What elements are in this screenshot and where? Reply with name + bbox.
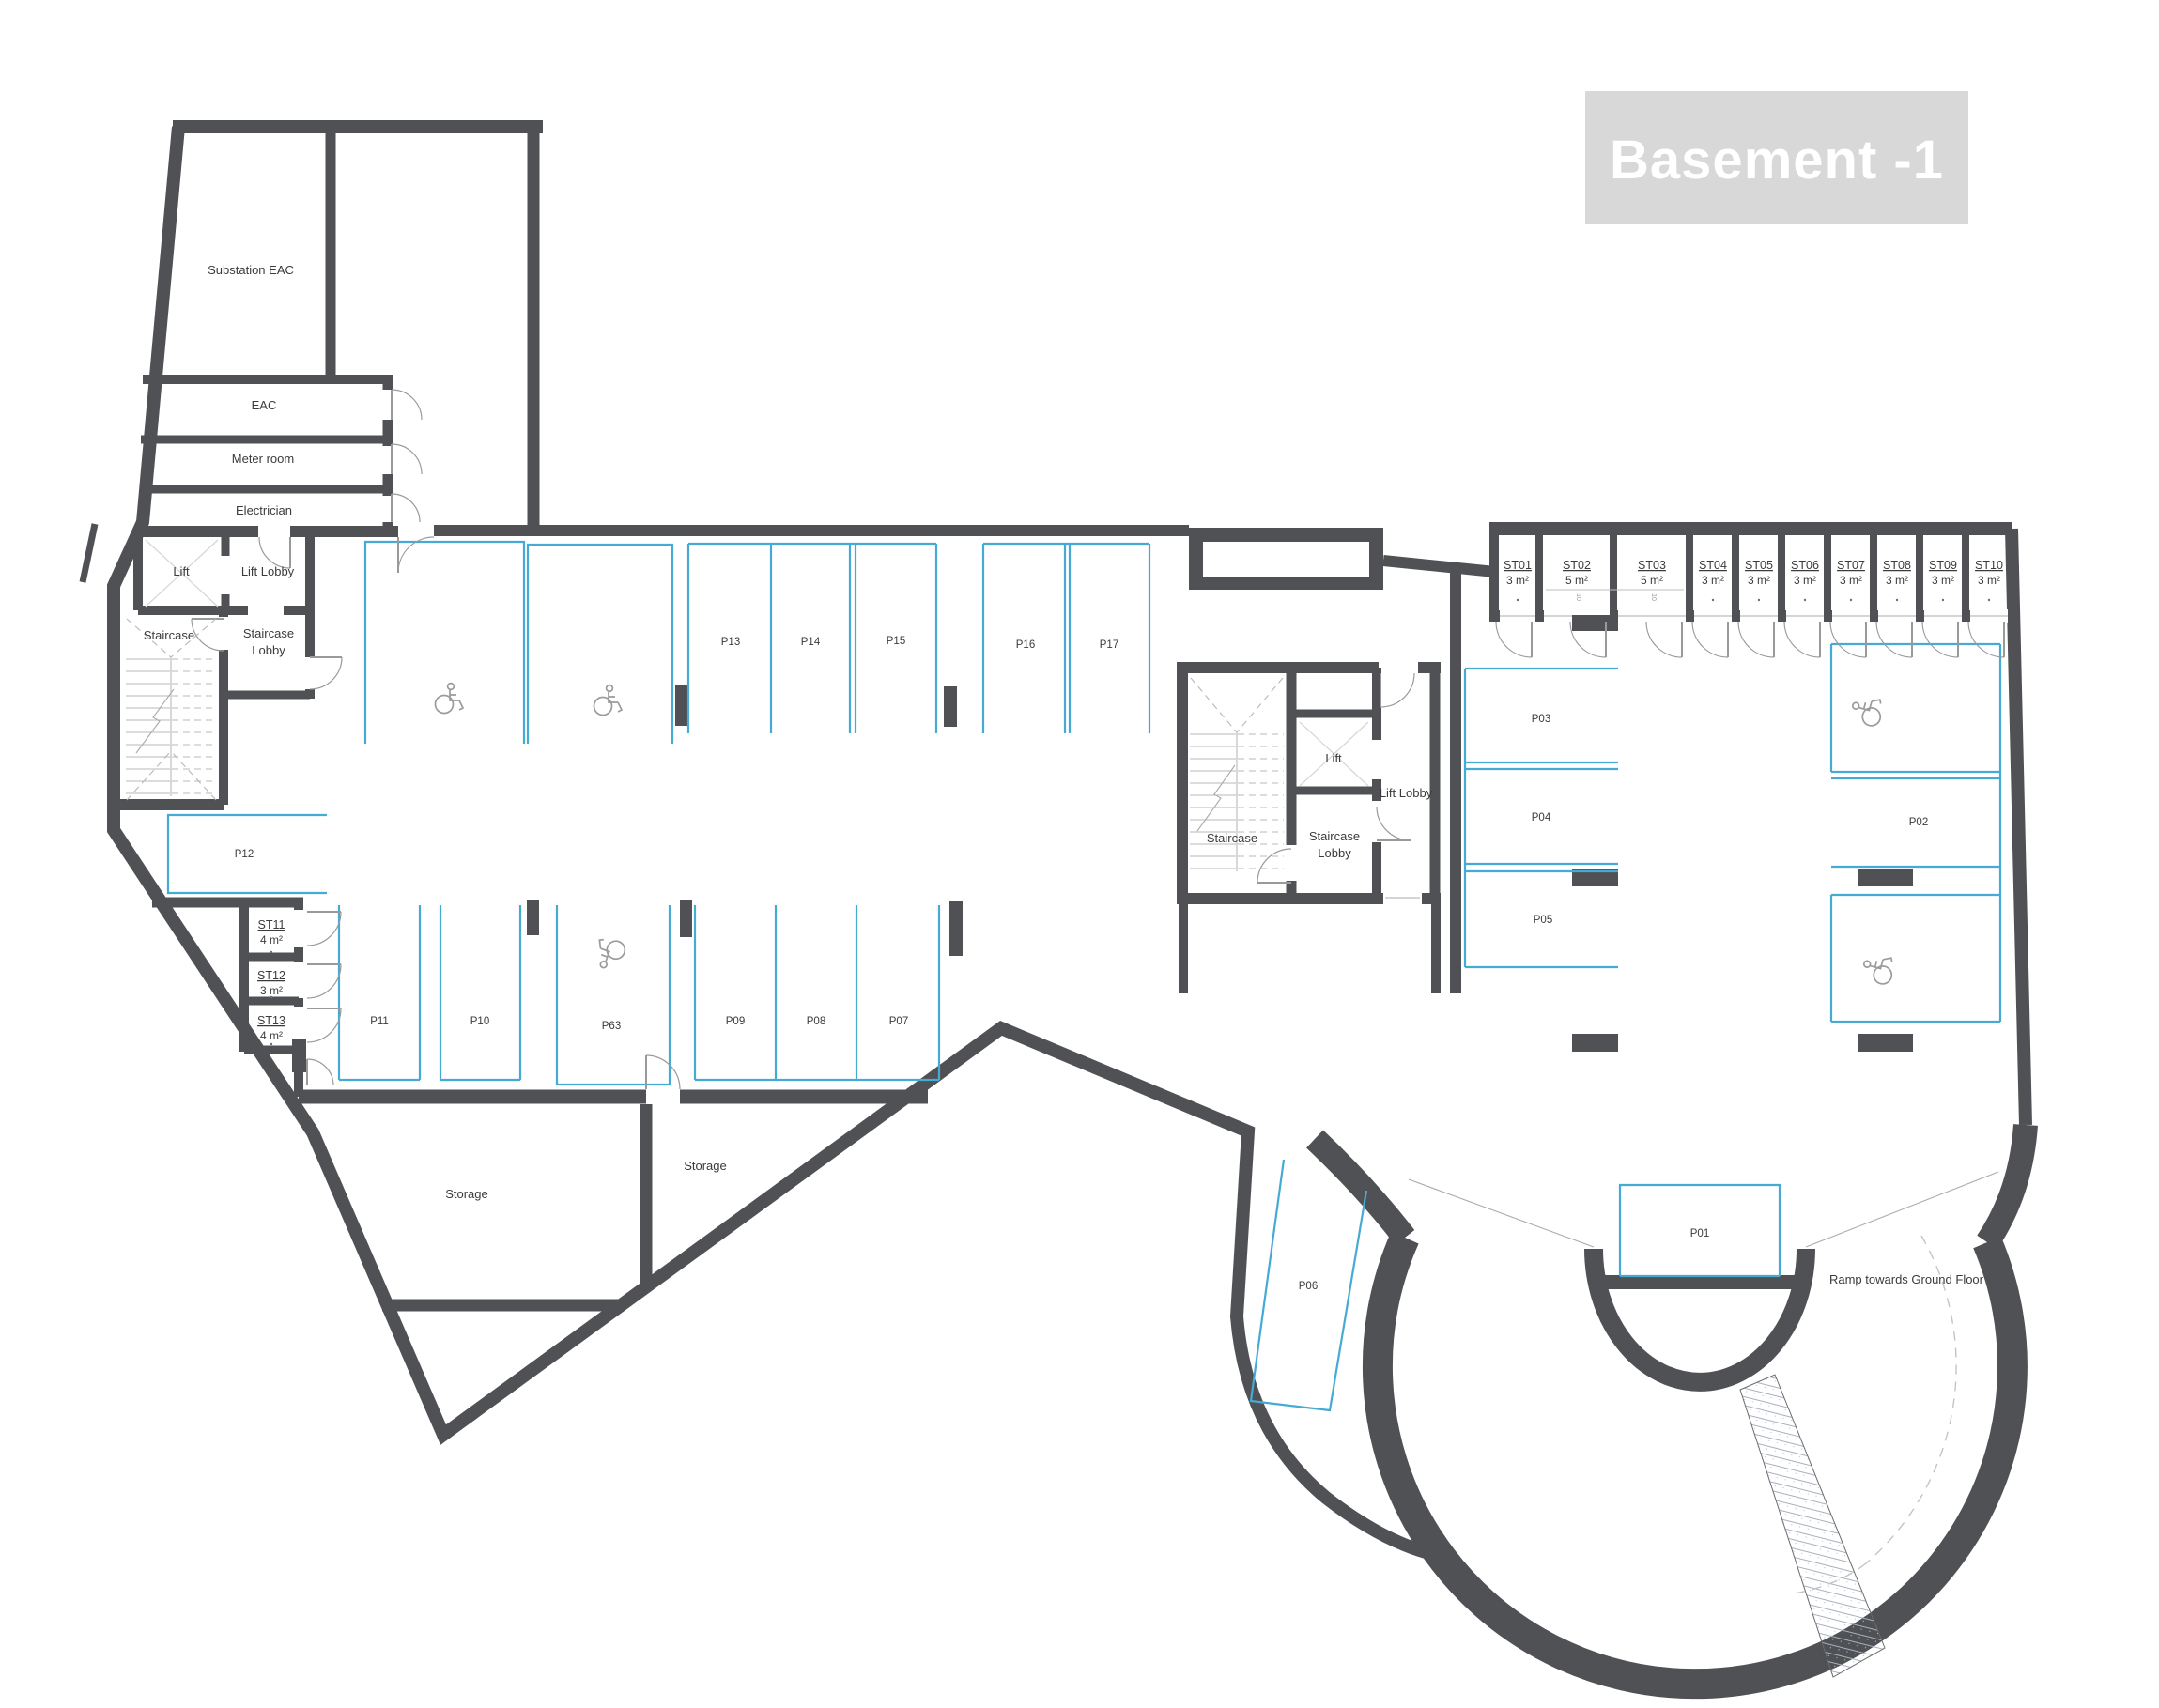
parking-label-p01: P01 bbox=[1690, 1228, 1709, 1239]
column bbox=[944, 686, 957, 727]
room-label-lift-lobby-left: Lift Lobby bbox=[241, 564, 295, 578]
labels-layer: Substation EAC EAC Meter room Electricia… bbox=[144, 263, 2003, 1292]
stair-direction-arrow bbox=[136, 689, 174, 753]
room-label-storage-left: Storage bbox=[445, 1187, 488, 1201]
top-wall-to-storage bbox=[1383, 561, 1495, 572]
storage-label-st09: ST09 bbox=[1929, 559, 1957, 572]
wheelchair-icon bbox=[436, 684, 464, 714]
storage-label-st03: ST03 bbox=[1638, 559, 1666, 572]
room-label-staircase-right: Staircase bbox=[1207, 831, 1257, 845]
room-label-lift-left: Lift bbox=[173, 564, 190, 578]
storage-area-st03: 5 m² bbox=[1641, 574, 1663, 587]
parking-label-p10: P10 bbox=[470, 1016, 489, 1027]
parking-label-p06: P06 bbox=[1299, 1281, 1318, 1292]
column bbox=[292, 1039, 306, 1072]
vent-shaft-opening bbox=[1203, 542, 1369, 577]
stair-direction-arrow bbox=[1197, 765, 1235, 831]
column bbox=[1572, 1034, 1618, 1052]
wall-stub-left bbox=[83, 524, 95, 582]
parking-label-p04: P04 bbox=[1532, 812, 1551, 823]
columns-layer bbox=[292, 615, 1913, 1072]
storage-label-st12: ST12 bbox=[257, 969, 285, 982]
storage-label-st07: ST07 bbox=[1837, 559, 1865, 572]
door-thresholds bbox=[1385, 616, 2008, 898]
title-block: Basement -1 bbox=[1585, 91, 1968, 224]
parking-label-p11: P11 bbox=[370, 1016, 389, 1027]
room-label-staircase-lobby-left-1: Staircase bbox=[243, 626, 294, 640]
column bbox=[949, 901, 963, 956]
column bbox=[1858, 869, 1913, 886]
storage-area-st11: 4 m² bbox=[260, 933, 283, 946]
storage-mark-st02: 10 bbox=[1575, 593, 1581, 601]
room-label-substation: Substation EAC bbox=[208, 263, 294, 277]
icons-layer bbox=[436, 684, 1897, 986]
storage-label-st11: ST11 bbox=[258, 918, 285, 931]
parking-label-p02: P02 bbox=[1909, 817, 1928, 828]
storage-area-st09: 3 m² bbox=[1932, 574, 1954, 587]
room-label-meter-room: Meter room bbox=[232, 452, 294, 466]
storage-area-st10: 3 m² bbox=[1978, 574, 2000, 587]
wheelchair-icon bbox=[1849, 693, 1885, 728]
main-top-wall bbox=[136, 531, 1189, 531]
storage-area-st08: 3 m² bbox=[1886, 574, 1908, 587]
ramp-left-prong-wall bbox=[1315, 1139, 1405, 1238]
storage-label-st10: ST10 bbox=[1975, 559, 2003, 572]
storage-area-st06: 3 m² bbox=[1794, 574, 1816, 587]
column bbox=[1858, 1034, 1913, 1052]
parking-label-p16: P16 bbox=[1016, 639, 1035, 651]
spots-bottom-row bbox=[339, 905, 939, 1085]
room-label-electrician: Electrician bbox=[236, 503, 292, 517]
parking-label-p63: P63 bbox=[602, 1021, 621, 1032]
parking-label-p14: P14 bbox=[801, 637, 821, 648]
room-label-staircase-lobby-left-2: Lobby bbox=[252, 643, 285, 657]
parking-label-p12: P12 bbox=[235, 849, 254, 860]
storage-area-st05: 3 m² bbox=[1748, 574, 1770, 587]
page-title: Basement -1 bbox=[1610, 130, 1944, 191]
storage-label-st01: ST01 bbox=[1504, 559, 1532, 572]
storage-area-st13: 4 m² bbox=[260, 1029, 283, 1042]
storage-label-st08: ST08 bbox=[1883, 559, 1911, 572]
ramp-horseshoe-bar bbox=[1595, 1275, 1805, 1289]
storage-label-st06: ST06 bbox=[1791, 559, 1819, 572]
parking-label-p03: P03 bbox=[1532, 714, 1550, 725]
walls-layer bbox=[83, 124, 2026, 1684]
floor-plan-canvas: Substation EAC EAC Meter room Electricia… bbox=[0, 0, 2159, 1708]
parking-label-p07: P07 bbox=[889, 1016, 908, 1027]
wheelchair-icon bbox=[591, 935, 627, 973]
ramp-hatched-strip bbox=[1740, 1375, 1885, 1677]
room-label-lift-right: Lift bbox=[1325, 751, 1342, 765]
room-label-lift-lobby-right: Lift Lobby bbox=[1380, 786, 1433, 800]
storage-label-st04: ST04 bbox=[1699, 559, 1727, 572]
parking-label-p08: P08 bbox=[807, 1016, 825, 1027]
storage-label-st02: ST02 bbox=[1563, 559, 1591, 572]
room-label-eac: EAC bbox=[252, 398, 277, 412]
ramp-note: Ramp towards Ground Floor bbox=[1829, 1272, 1984, 1286]
storage-label-st13: ST13 bbox=[257, 1014, 285, 1027]
storage-row-dividers bbox=[1539, 522, 1966, 622]
spots-p16-p17 bbox=[983, 544, 1149, 733]
parking-label-p05: P05 bbox=[1534, 915, 1552, 926]
spots-right-column bbox=[1831, 644, 2000, 1022]
room-label-staircase-lobby-right-1: Staircase bbox=[1309, 829, 1360, 843]
storage-area-st02: 5 m² bbox=[1565, 574, 1588, 587]
doors-layer bbox=[192, 390, 2004, 1089]
room-label-storage-right: Storage bbox=[684, 1159, 727, 1173]
column bbox=[527, 900, 539, 935]
column bbox=[675, 685, 687, 726]
parking-label-p15: P15 bbox=[887, 636, 905, 647]
storage-label-st05: ST05 bbox=[1745, 559, 1773, 572]
storage-area-st12: 3 m² bbox=[260, 984, 283, 997]
floor-plan-page: Substation EAC EAC Meter room Electricia… bbox=[0, 0, 2159, 1708]
column bbox=[1572, 615, 1618, 631]
column bbox=[680, 900, 692, 937]
wheelchair-icon bbox=[594, 685, 623, 716]
room-label-staircase-left: Staircase bbox=[144, 628, 194, 642]
storage-mark-st03: 10 bbox=[1650, 593, 1657, 601]
storage-area-st07: 3 m² bbox=[1840, 574, 1862, 587]
ramp-horseshoe-wall bbox=[1594, 1249, 1806, 1382]
parking-label-p17: P17 bbox=[1100, 639, 1118, 651]
ramp-right-join-wall bbox=[1987, 1125, 2026, 1242]
parking-label-p13: P13 bbox=[721, 637, 740, 648]
storage-area-st01: 3 m² bbox=[1506, 574, 1529, 587]
storage-area-st04: 3 m² bbox=[1702, 574, 1724, 587]
room-label-staircase-lobby-right-2: Lobby bbox=[1318, 846, 1351, 860]
parking-label-p09: P09 bbox=[726, 1016, 745, 1027]
ramp-outer-ring-wall bbox=[1378, 1238, 2012, 1684]
wheelchair-icon bbox=[1860, 951, 1896, 986]
